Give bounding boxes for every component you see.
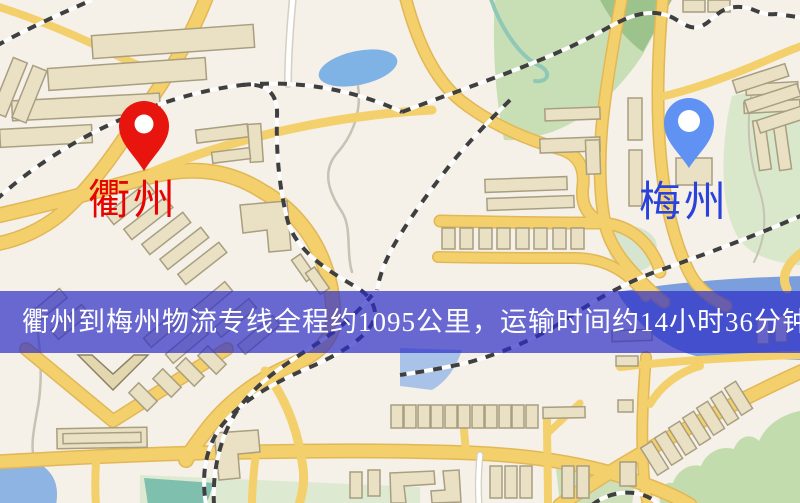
origin-city-label: 衢州 bbox=[88, 180, 178, 222]
route-info-text: 衢州到梅州物流专线全程约1095公里，运输时间约14小时36分钟. bbox=[0, 291, 800, 353]
logistics-route-map: 衢州 梅州 衢州到梅州物流专线全程约1095公里，运输时间约14小时36分钟. bbox=[0, 0, 800, 503]
route-info-banner: 衢州到梅州物流专线全程约1095公里，运输时间约14小时36分钟. bbox=[0, 291, 800, 353]
map-image bbox=[0, 0, 800, 503]
destination-city-label: 梅州 bbox=[639, 182, 729, 224]
